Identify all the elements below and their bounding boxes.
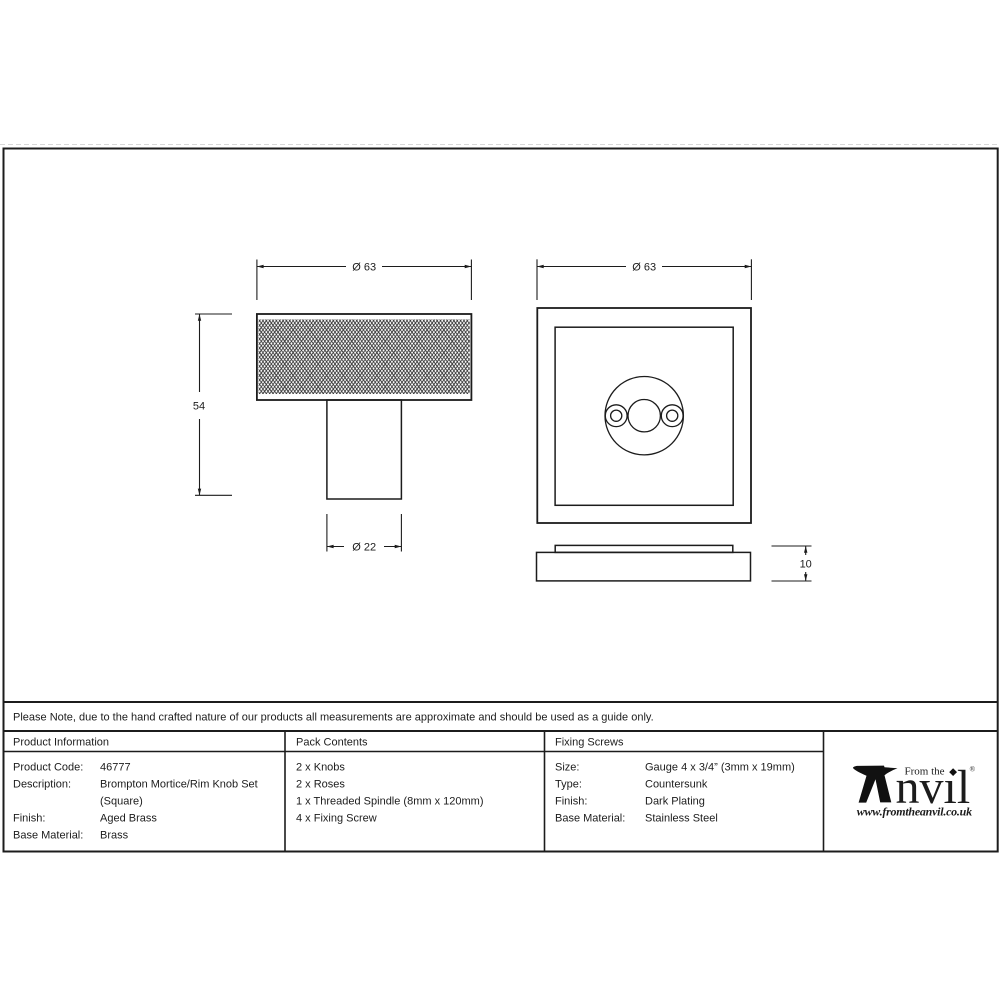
svg-text:Please Note, due to the hand c: Please Note, due to the hand crafted nat…: [13, 711, 654, 723]
svg-text:10: 10: [800, 559, 812, 571]
svg-text:Base Material:: Base Material:: [555, 812, 625, 824]
svg-text:46777: 46777: [100, 761, 131, 773]
svg-text:Ø 22: Ø 22: [352, 542, 376, 554]
svg-text:Base Material:: Base Material:: [13, 829, 83, 841]
svg-text:Fixing Screws: Fixing Screws: [555, 736, 624, 748]
svg-text:Dark Plating: Dark Plating: [645, 795, 705, 807]
svg-text:(Square): (Square): [100, 795, 143, 807]
svg-text:Finish:: Finish:: [13, 812, 45, 824]
svg-text:Finish:: Finish:: [555, 795, 587, 807]
svg-text:Ø 63: Ø 63: [632, 262, 656, 274]
svg-text:Brass: Brass: [100, 829, 129, 841]
svg-text:www.fromtheanvil.co.uk: www.fromtheanvil.co.uk: [857, 805, 972, 819]
svg-text:Type:: Type:: [555, 778, 582, 790]
svg-text:Countersunk: Countersunk: [645, 778, 708, 790]
svg-text:Pack Contents: Pack Contents: [296, 736, 368, 748]
svg-text:54: 54: [193, 401, 205, 413]
svg-text:2 x Knobs: 2 x Knobs: [296, 761, 345, 773]
svg-text:Brompton Mortice/Rim Knob Set: Brompton Mortice/Rim Knob Set: [100, 778, 258, 790]
svg-text:Product Code:: Product Code:: [13, 761, 83, 773]
svg-text:1 x Threaded Spindle (8mm x 12: 1 x Threaded Spindle (8mm x 120mm): [296, 795, 484, 807]
svg-text:Size:: Size:: [555, 761, 579, 773]
svg-text:Ø 63: Ø 63: [352, 262, 376, 274]
svg-text:Aged Brass: Aged Brass: [100, 812, 157, 824]
svg-text:®: ®: [970, 765, 976, 774]
svg-text:2 x Roses: 2 x Roses: [296, 778, 345, 790]
svg-text:Stainless Steel: Stainless Steel: [645, 812, 718, 824]
svg-text:Product Information: Product Information: [13, 736, 109, 748]
svg-text:4 x Fixing Screw: 4 x Fixing Screw: [296, 812, 377, 824]
svg-text:Description:: Description:: [13, 778, 71, 790]
svg-text:Gauge 4 x 3/4” (3mm x 19mm): Gauge 4 x 3/4” (3mm x 19mm): [645, 761, 795, 773]
